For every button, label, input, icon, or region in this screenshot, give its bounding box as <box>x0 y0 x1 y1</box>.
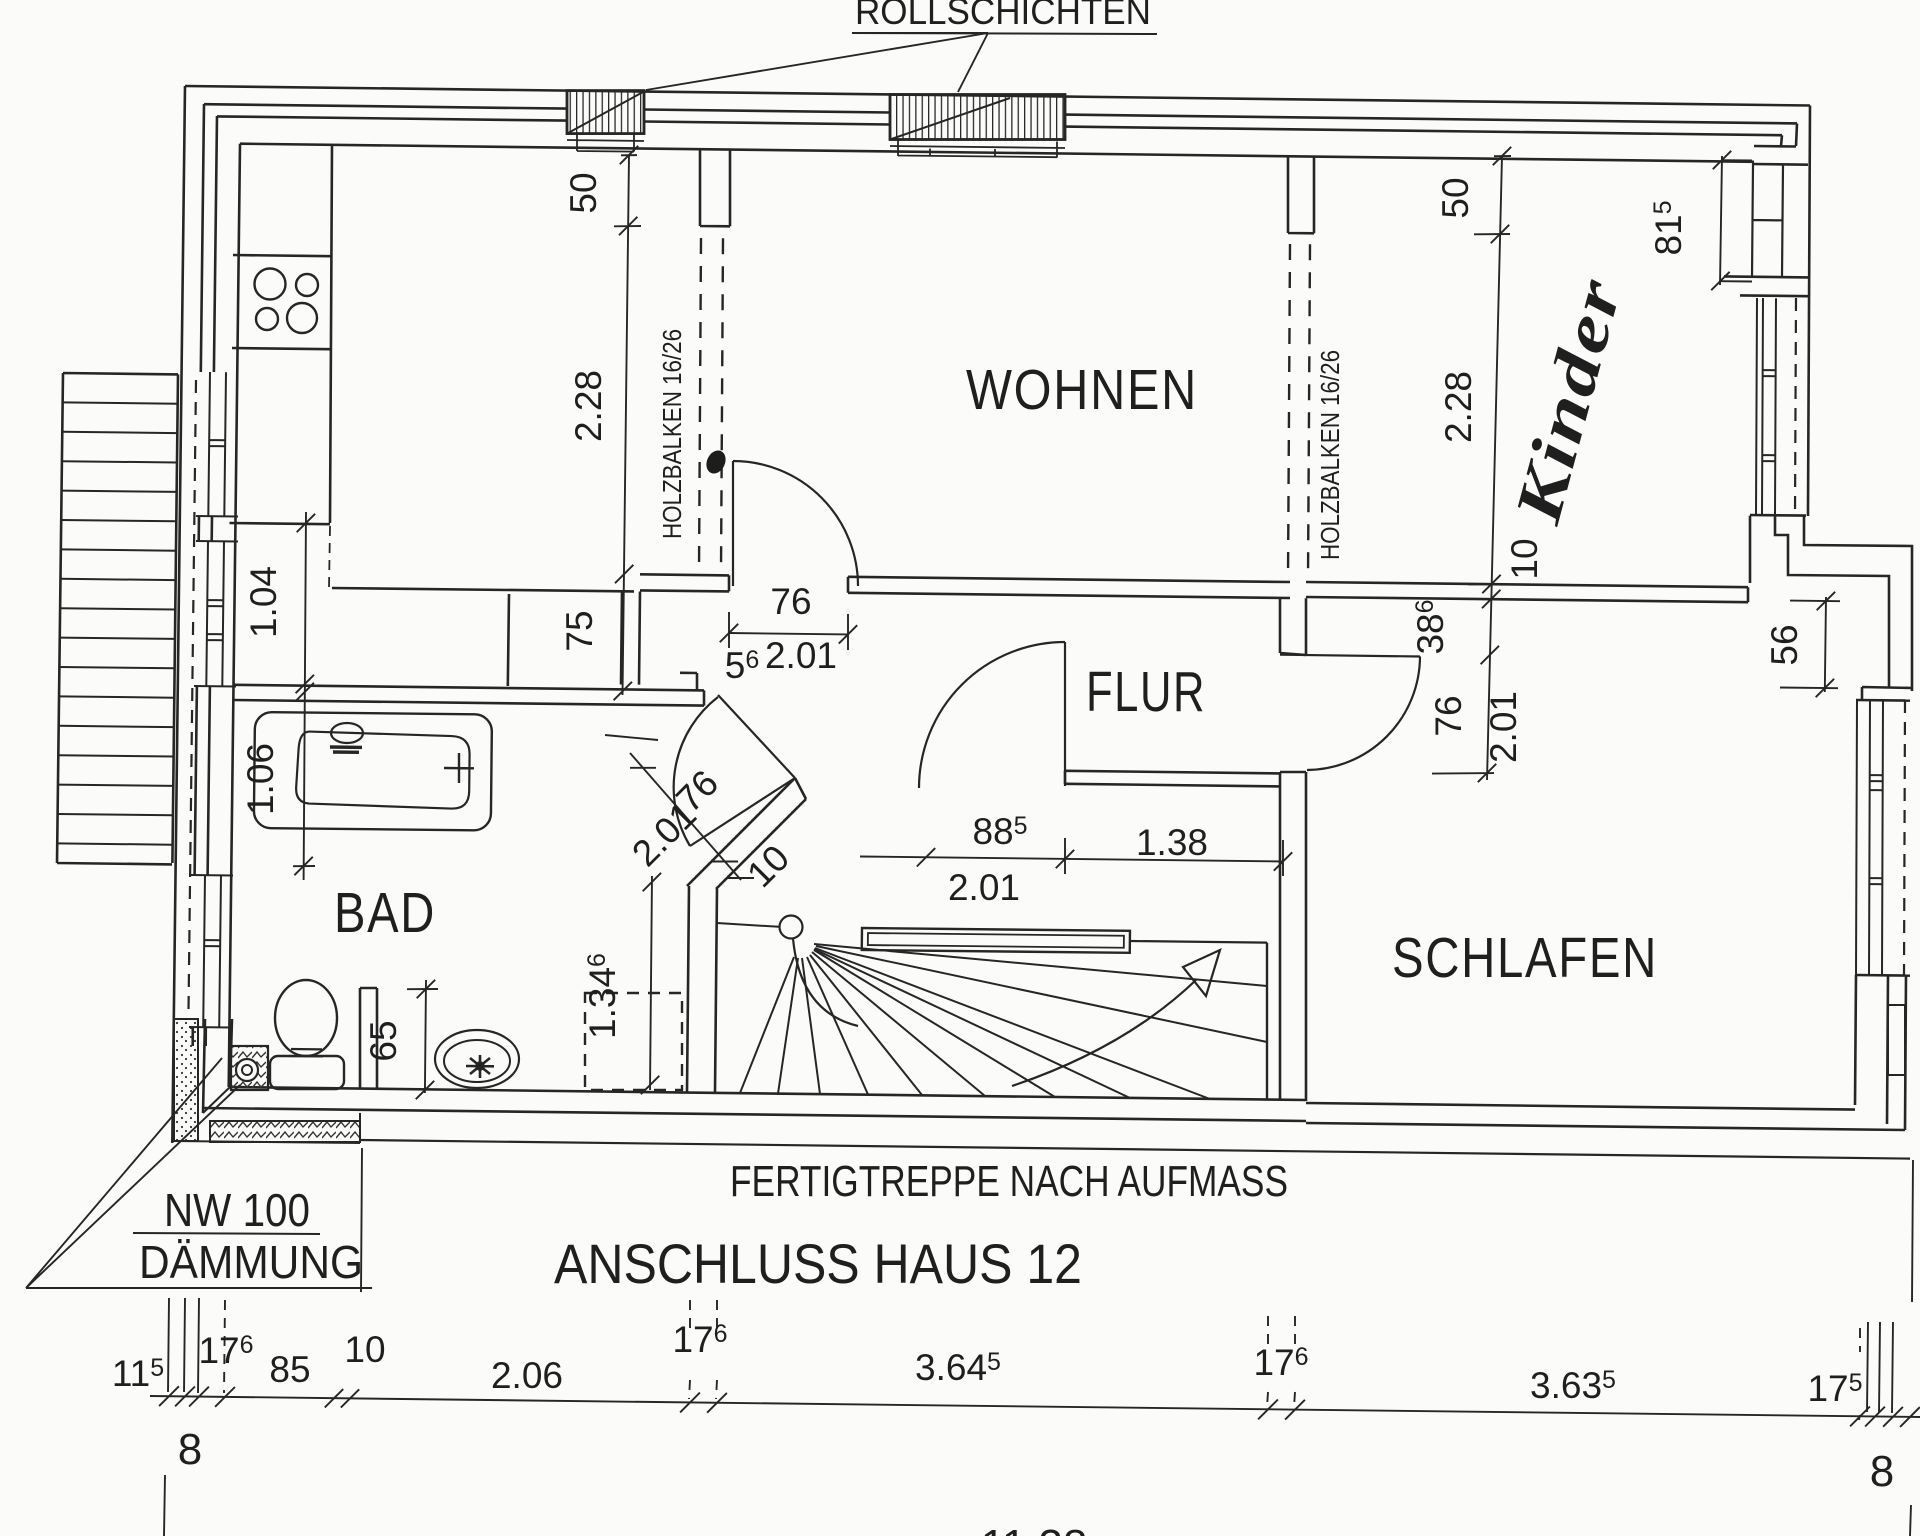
svg-text:10: 10 <box>344 1329 385 1370</box>
svg-text:2.06: 2.06 <box>491 1355 563 1396</box>
svg-text:1.38: 1.38 <box>1136 822 1208 863</box>
svg-text:2.01: 2.01 <box>1483 691 1524 763</box>
svg-text:NW 100: NW 100 <box>164 1184 310 1236</box>
svg-text:SCHLAFEN: SCHLAFEN <box>1392 926 1658 990</box>
svg-text:1.04: 1.04 <box>243 566 284 638</box>
svg-text:8: 8 <box>1870 1447 1894 1496</box>
svg-text:1.06: 1.06 <box>240 743 281 815</box>
svg-text:56: 56 <box>1764 624 1805 665</box>
svg-text:WOHNEN: WOHNEN <box>966 358 1198 422</box>
svg-text:8: 8 <box>178 1425 202 1474</box>
svg-text:HOLZBALKEN 16/26: HOLZBALKEN 16/26 <box>657 329 687 539</box>
svg-text:50: 50 <box>1435 177 1476 218</box>
svg-text:2.01: 2.01 <box>948 867 1020 908</box>
svg-text:DÄMMUNG: DÄMMUNG <box>139 1236 363 1288</box>
svg-text:76: 76 <box>1428 695 1469 736</box>
svg-text:65: 65 <box>363 1020 404 1061</box>
svg-text:FERTIGTREPPE NACH AUFMASS: FERTIGTREPPE NACH AUFMASS <box>730 1157 1288 1206</box>
svg-text:BAD: BAD <box>334 881 436 945</box>
svg-text:ANSCHLUSS HAUS 12: ANSCHLUSS HAUS 12 <box>554 1232 1082 1295</box>
svg-text:ROLLSCHICHTEN: ROLLSCHICHTEN <box>855 0 1151 32</box>
svg-text:2.28: 2.28 <box>568 370 609 442</box>
svg-text:10: 10 <box>1504 538 1545 579</box>
svg-text:2.28: 2.28 <box>1438 371 1479 443</box>
svg-text:FLUR: FLUR <box>1086 660 1206 724</box>
svg-text:11.38: 11.38 <box>981 1521 1088 1536</box>
svg-text:76: 76 <box>770 581 811 622</box>
svg-text:HOLZBALKEN 16/26: HOLZBALKEN 16/26 <box>1315 350 1345 560</box>
svg-text:50: 50 <box>563 172 604 213</box>
svg-text:2.01: 2.01 <box>765 635 837 676</box>
svg-text:85: 85 <box>269 1349 310 1390</box>
svg-text:75: 75 <box>559 610 600 651</box>
